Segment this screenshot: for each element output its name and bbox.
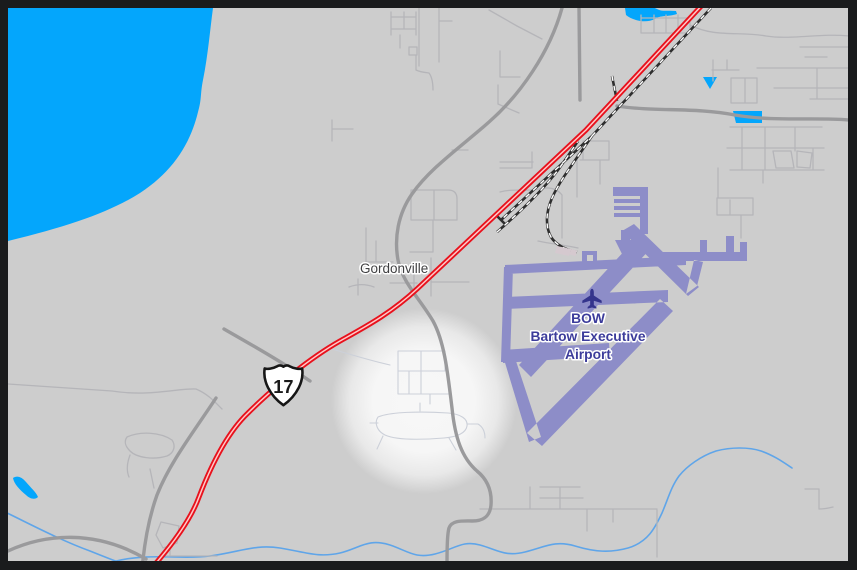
highlight-spotlight — [331, 308, 517, 494]
airport-name-line1: Bartow Executive — [530, 329, 645, 344]
route-number: 17 — [273, 377, 293, 397]
airport-name-line2: Airport — [565, 347, 611, 362]
map-viewport[interactable]: Gordonville BOW Bartow Executive Airport… — [0, 0, 857, 570]
map-canvas[interactable]: Gordonville BOW Bartow Executive Airport… — [0, 0, 857, 570]
town-label: Gordonville — [360, 261, 428, 276]
taxiway-loop-hole — [587, 255, 593, 261]
airport-code: BOW — [571, 311, 606, 326]
